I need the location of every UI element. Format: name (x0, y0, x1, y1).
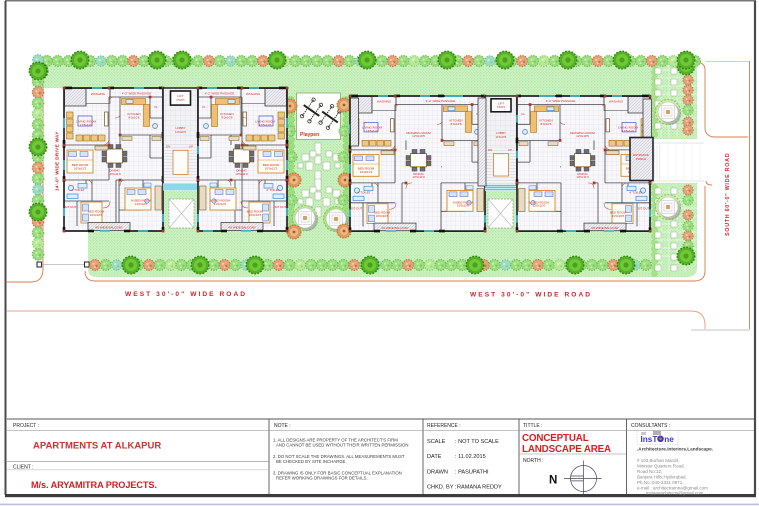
svg-text:11'0x12'0: 11'0x12'0 (214, 202, 227, 206)
svg-text:SCALE: SCALE (427, 439, 446, 445)
svg-text:CHKD. BY :: CHKD. BY : (427, 485, 457, 491)
svg-text:11'0x20'6: 11'0x20'6 (175, 130, 186, 134)
svg-text:Playpen: Playpen (300, 132, 319, 138)
svg-text:4'6 WIDE BALCONY: 4'6 WIDE BALCONY (228, 226, 256, 230)
svg-text:: 11.02.2015: : 11.02.2015 (455, 454, 486, 460)
svg-text:LIFT: LIFT (498, 101, 504, 105)
svg-text:WASHING: WASHING (246, 92, 261, 96)
svg-text:WEST 30'-0" WIDE ROAD: WEST 30'-0" WIDE ROAD (470, 292, 592, 299)
svg-text:Banjara Hills,Hyderabad.: Banjara Hills,Hyderabad. (637, 475, 687, 480)
svg-text:WASHING: WASHING (377, 99, 392, 103)
svg-text:NOTE :: NOTE : (274, 423, 291, 429)
svg-text:InsT: InsT (641, 435, 658, 444)
svg-text:LANDSCAPE AREA: LANDSCAPE AREA (522, 444, 611, 455)
svg-text:: PASUPATHI: : PASUPATHI (455, 470, 489, 476)
svg-text:CONSULTANTS :: CONSULTANTS : (631, 423, 670, 429)
svg-text:CL.: CL. (154, 105, 159, 109)
svg-text:UP: UP (508, 148, 512, 152)
svg-text:10'0x10'6: 10'0x10'6 (249, 213, 262, 217)
svg-text:WEST 30'-0" WIDE ROAD: WEST 30'-0" WIDE ROAD (125, 291, 247, 298)
svg-text:SIT OUT: SIT OUT (638, 206, 650, 210)
svg-text:4' TOILET: 4' TOILET (71, 188, 85, 192)
svg-text:instaneachitects@gmail.com: instaneachitects@gmail.com (646, 491, 704, 496)
svg-text:6'5x5'5: 6'5x5'5 (176, 98, 185, 102)
svg-text:10'6x11'0: 10'6x11'0 (235, 172, 248, 176)
svg-text:: NOT TO SCALE: : NOT TO SCALE (455, 439, 499, 445)
svg-text:4'-2" WIDE PASSAGE: 4'-2" WIDE PASSAGE (122, 92, 152, 96)
svg-text:DRAWN: DRAWN (427, 470, 448, 476)
svg-text:10'0x11'3: 10'0x11'3 (265, 167, 278, 171)
svg-text:REFER WORKING DRAWINGS FOR DET: REFER WORKING DRAWINGS FOR DETAILS. (276, 476, 368, 481)
svg-text:10'0x10'6: 10'0x10'6 (612, 214, 625, 218)
svg-text:SOUTH 60'-0" WIDE ROAD: SOUTH 60'-0" WIDE ROAD (725, 153, 731, 236)
svg-text:RAMANA REDDY: RAMANA REDDY (457, 485, 502, 491)
svg-text:10'6x11'0: 10'6x11'0 (108, 172, 121, 176)
svg-text:PORCH: PORCH (636, 157, 646, 161)
svg-text:4'6 WIDE BALCONY: 4'6 WIDE BALCONY (591, 226, 619, 230)
svg-text:14'-0" WIDE DRIVE WAY: 14'-0" WIDE DRIVE WAY (55, 131, 60, 191)
svg-text:8'0x10'6: 8'0x10'6 (129, 116, 140, 120)
svg-text:CONCEPTUAL: CONCEPTUAL (522, 433, 589, 444)
svg-text:PROJECT :: PROJECT : (13, 423, 39, 429)
svg-text:WASHING: WASHING (609, 99, 624, 103)
svg-text:10'0x11'3: 10'0x11'3 (74, 167, 87, 171)
svg-text:AND CANNOT BE USED WITHOUT THE: AND CANNOT BE USED WITHOUT THEIR WRITTEN… (276, 443, 409, 448)
svg-text:11'0x12'0: 11'0x12'0 (135, 202, 148, 206)
svg-text:17'5x11'0: 17'5x11'0 (80, 123, 93, 127)
svg-text:4' TOILET: 4' TOILET (266, 188, 280, 192)
svg-text:4'-2" WIDE PASSAGE: 4'-2" WIDE PASSAGE (205, 92, 235, 96)
svg-text:DN: DN (488, 148, 492, 152)
svg-text:10'0x10'6: 10'0x10'6 (376, 214, 389, 218)
svg-text:11'0x12'0: 11'0x12'0 (533, 204, 546, 208)
svg-text:Road No:12,: Road No:12, (637, 469, 662, 474)
svg-text:8'0x10'6: 8'0x10'6 (451, 122, 462, 126)
svg-text:BE CHECKED BY SITE INCHARGE.: BE CHECKED BY SITE INCHARGE. (276, 459, 347, 464)
svg-text:10'6x11'0: 10'6x11'0 (576, 175, 589, 179)
svg-text:SIT OUT: SIT OUT (275, 205, 287, 209)
svg-text:# 103,Burhan Manzil,: # 103,Burhan Manzil, (637, 458, 680, 463)
svg-text:ne: ne (664, 435, 674, 444)
svg-text:DN: DN (166, 144, 170, 148)
svg-text:12'0x19'5: 12'0x19'5 (412, 134, 425, 138)
svg-text:REFERENCE :: REFERENCE : (427, 423, 461, 429)
svg-text:8'0x10'6: 8'0x10'6 (541, 122, 552, 126)
svg-text:17'5x11'0: 17'5x11'0 (622, 129, 635, 133)
svg-text:10'0x10'6: 10'0x10'6 (90, 213, 103, 217)
svg-text:CL.: CL. (521, 112, 526, 116)
svg-text:.Architecture.Interiors.Landsc: .Architecture.Interiors.Landscape. (637, 447, 713, 452)
svg-text:LOBBY: LOBBY (175, 126, 185, 130)
svg-text:10'0x11'3: 10'0x11'3 (360, 170, 373, 174)
svg-text:SIT OUT: SIT OUT (65, 205, 77, 209)
svg-text:TITTLE :: TITTLE : (523, 423, 542, 429)
svg-text:Minister Quarters Road,: Minister Quarters Road, (637, 464, 685, 469)
svg-text:4' TOILET: 4' TOILET (357, 190, 371, 194)
svg-text:17'5x11'0: 17'5x11'0 (259, 123, 272, 127)
svg-text:8'0x10'6: 8'0x10'6 (222, 116, 233, 120)
svg-text:11'0x20'6: 11'0x20'6 (496, 135, 507, 139)
svg-text:N: N (549, 475, 557, 487)
svg-text:CLIENT :: CLIENT : (13, 464, 33, 470)
svg-text:10'6x11'0: 10'6x11'0 (412, 175, 425, 179)
svg-text:WASHING: WASHING (91, 92, 106, 96)
svg-text:4'-2" WIDE PASSAGE: 4'-2" WIDE PASSAGE (546, 99, 576, 103)
svg-text:4' TOILET: 4' TOILET (629, 190, 643, 194)
svg-text:Ph.No.:040-2331 0971,: Ph.No.:040-2331 0971, (637, 480, 684, 485)
svg-text:NORTH :: NORTH : (523, 458, 543, 464)
svg-text:M/s. ARYAMITRA PROJECTS.: M/s. ARYAMITRA PROJECTS. (31, 480, 157, 490)
svg-text:12'0x19'5: 12'0x19'5 (576, 134, 589, 138)
svg-text:CL.: CL. (202, 105, 207, 109)
svg-text:LOBBY: LOBBY (496, 131, 506, 135)
svg-text:LIFT: LIFT (177, 94, 183, 98)
svg-text:UP: UP (189, 144, 193, 148)
svg-text:APARTMENTS AT ALKAPUR: APARTMENTS AT ALKAPUR (33, 440, 161, 451)
svg-text:SIT OUT: SIT OUT (351, 206, 363, 210)
svg-text:4'6 WIDE BALCONY: 4'6 WIDE BALCONY (95, 226, 123, 230)
svg-text:11'0x12'0: 11'0x12'0 (457, 204, 470, 208)
svg-text:6'5x5'5: 6'5x5'5 (497, 105, 506, 109)
svg-text:4'-2" WIDE PASSAGE: 4'-2" WIDE PASSAGE (426, 99, 456, 103)
svg-text:17'5x11'0: 17'5x11'0 (366, 129, 379, 133)
svg-text:DATE: DATE (427, 454, 442, 460)
svg-text:4'6 WIDE BALCONY: 4'6 WIDE BALCONY (381, 226, 409, 230)
